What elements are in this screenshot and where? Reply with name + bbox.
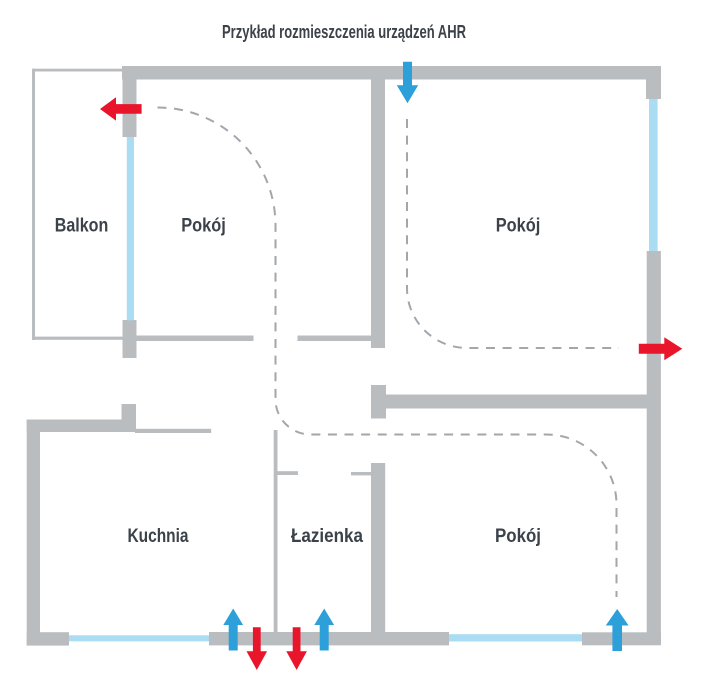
- svg-text:Przykład rozmieszczenia urządz: Przykład rozmieszczenia urządzeń AHR: [222, 22, 466, 42]
- svg-text:Balkon: Balkon: [55, 215, 109, 237]
- svg-text:Pokój: Pokój: [496, 215, 541, 237]
- svg-text:Pokój: Pokój: [495, 525, 541, 547]
- svg-text:Łazienka: Łazienka: [291, 525, 363, 547]
- svg-text:Pokój: Pokój: [181, 215, 226, 237]
- svg-text:Kuchnia: Kuchnia: [128, 525, 189, 547]
